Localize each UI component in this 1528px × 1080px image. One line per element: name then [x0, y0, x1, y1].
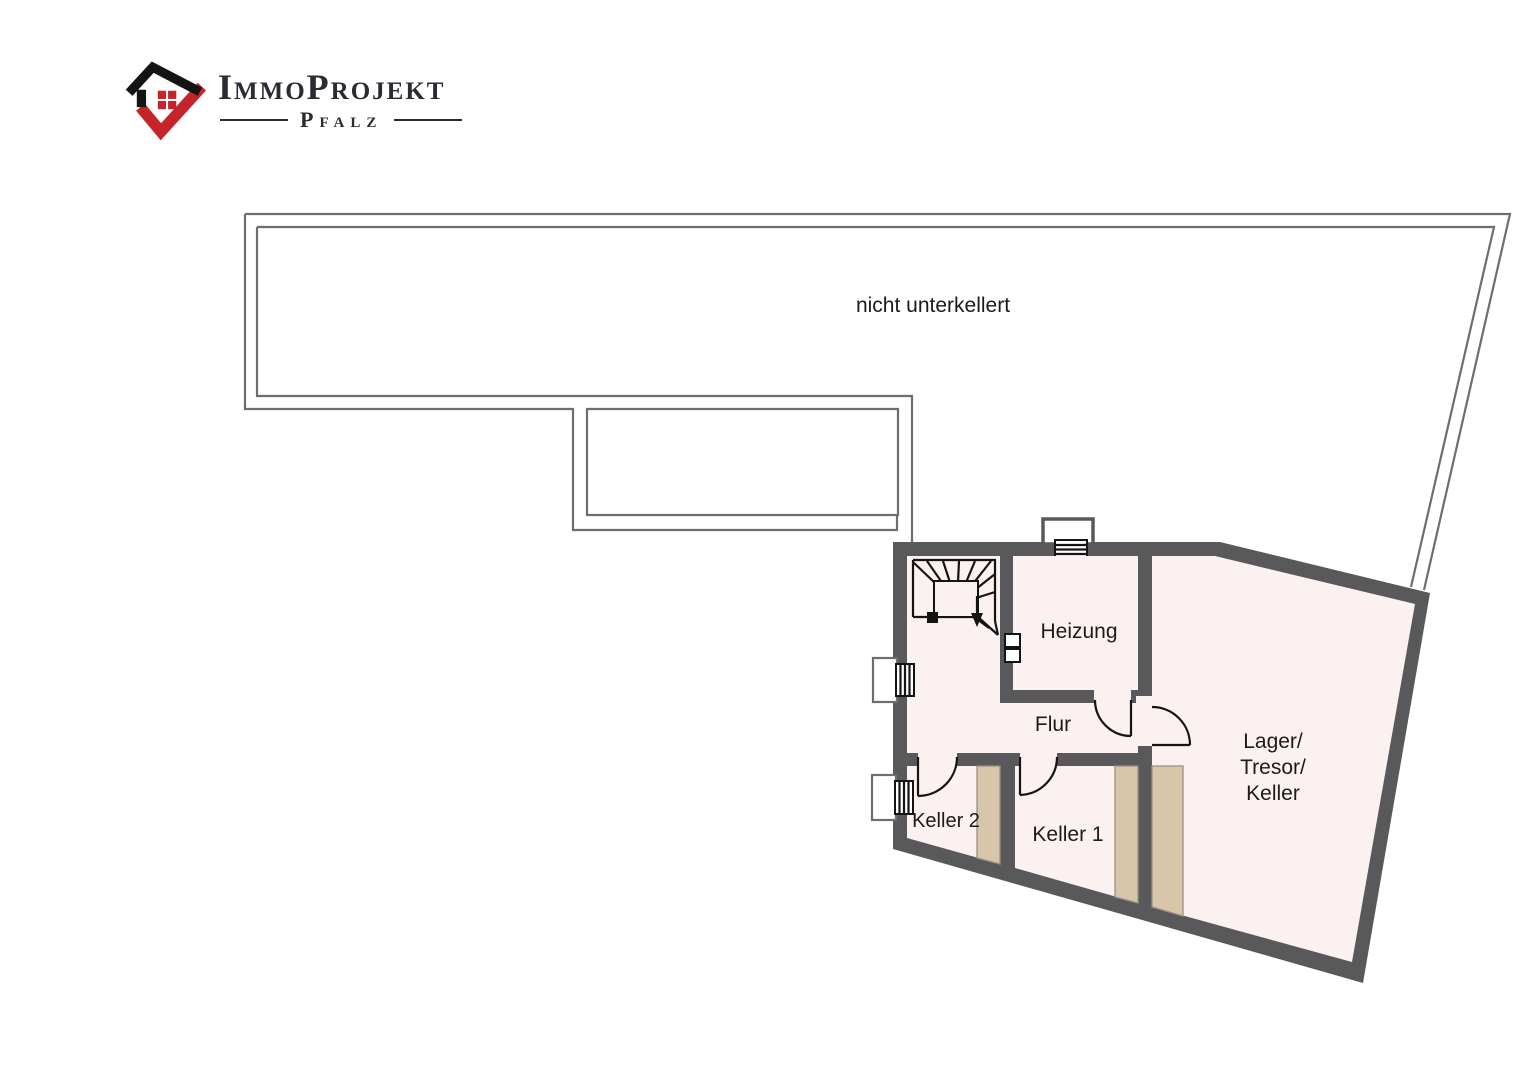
floorplan-page: ImmoProjekt Pfalz [0, 0, 1528, 1080]
label-keller2: Keller 2 [912, 810, 980, 832]
floor-plan: nicht unterkellert Heizung Flur Keller 2… [0, 0, 1528, 1080]
label-flur: Flur [1035, 713, 1071, 736]
strip-keller2 [977, 766, 1000, 864]
label-lager-line3: Keller [1246, 782, 1300, 805]
label-nicht-unterkellert: nicht unterkellert [856, 294, 1010, 317]
nicht-unterkellert-outline [245, 214, 1510, 590]
label-heizung: Heizung [1040, 620, 1117, 643]
label-lager-line1: Lager/ [1243, 730, 1303, 753]
stair-start-marker [927, 612, 938, 623]
strip-lager [1152, 766, 1183, 916]
window-2 [872, 775, 913, 820]
label-lager-line2: Tresor/ [1240, 756, 1306, 779]
label-keller1: Keller 1 [1032, 823, 1103, 846]
strip-keller1 [1115, 766, 1138, 903]
heater-appliance-icon [1005, 634, 1020, 662]
window-1 [873, 658, 914, 702]
